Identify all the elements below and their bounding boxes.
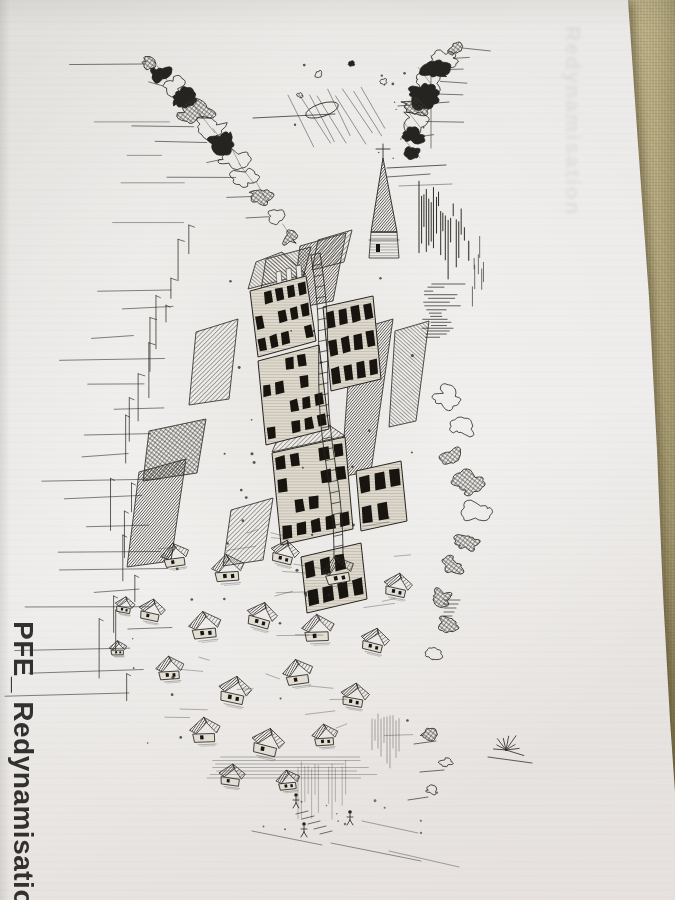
caption-text: PFE_ Redynamisation	[7, 621, 39, 900]
showthrough-text: Redynamisation	[561, 26, 585, 216]
paper-sheet: PFE_ Redynamisation Redynamisation	[0, 0, 675, 900]
paper-shadow: PFE_ Redynamisation Redynamisation	[0, 0, 675, 900]
photo-of-sketch-page: PFE_ Redynamisation Redynamisation	[0, 0, 675, 900]
